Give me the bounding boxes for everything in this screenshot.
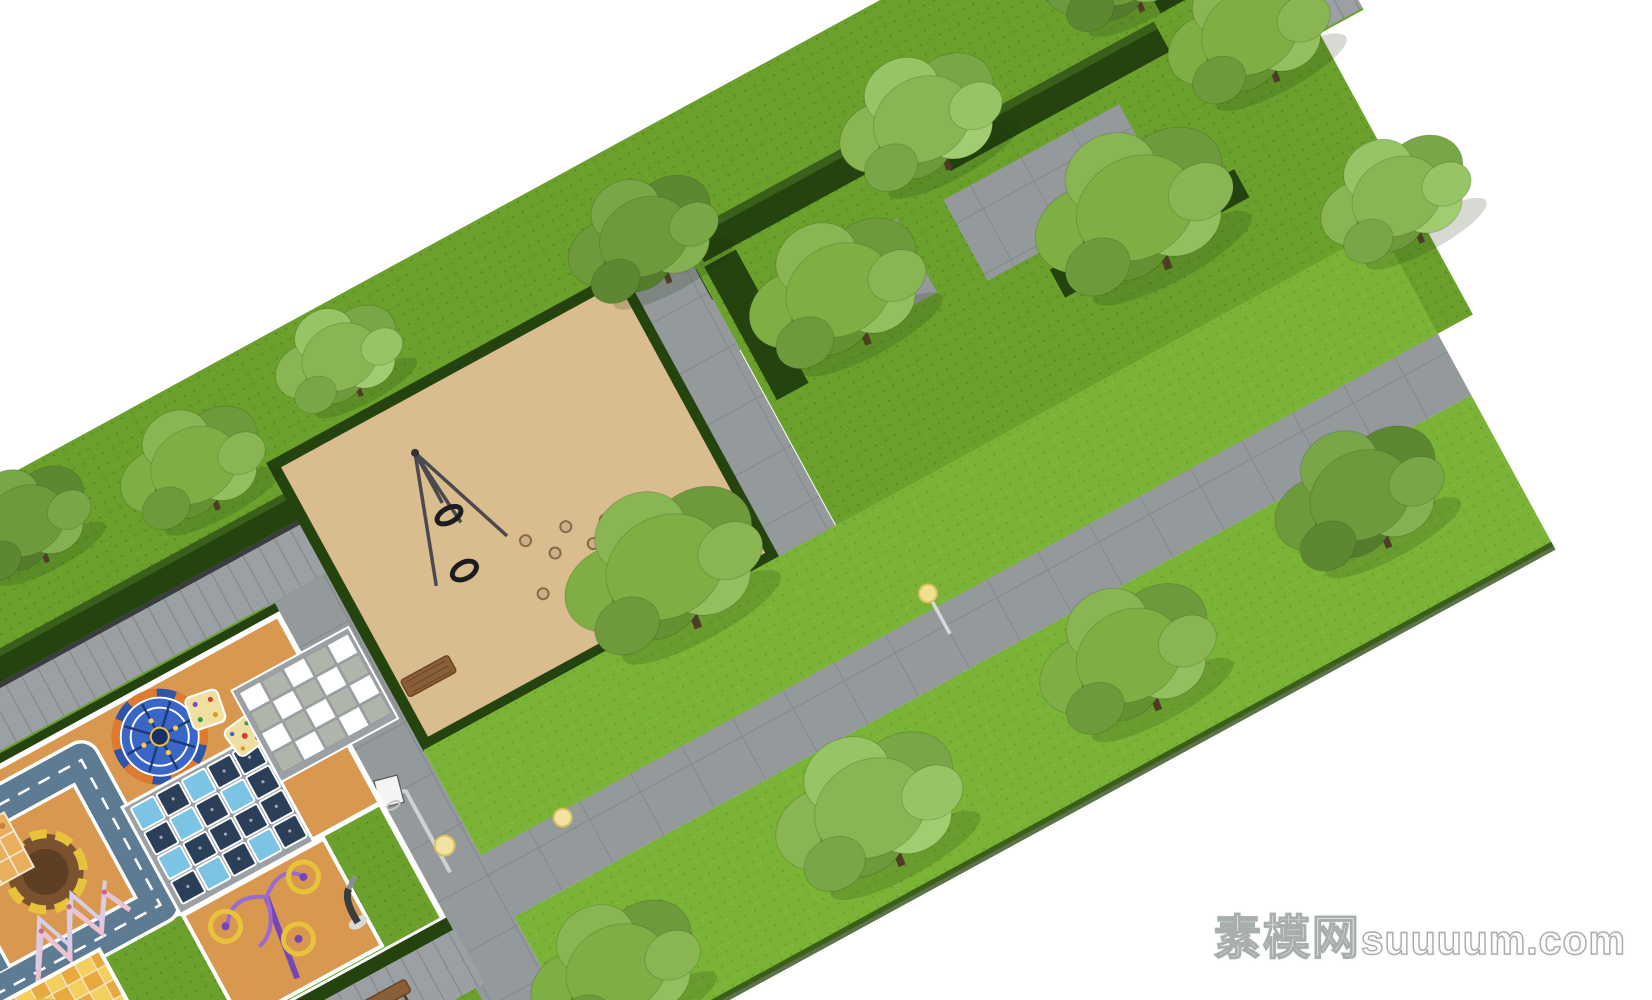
landscape-render: 5M10M15M20M25M30M START RUN: [0, 0, 1652, 1000]
scene-svg: 5M10M15M20M25M30M START RUN: [0, 0, 1652, 1000]
park-band: 5M10M15M20M25M30M START RUN: [0, 0, 1652, 1000]
watermark: 素模网suuuum.com: [1214, 899, 1626, 968]
watermark-latin: suuuum.com: [1361, 917, 1626, 963]
watermark-cjk: 素模网: [1214, 911, 1361, 964]
